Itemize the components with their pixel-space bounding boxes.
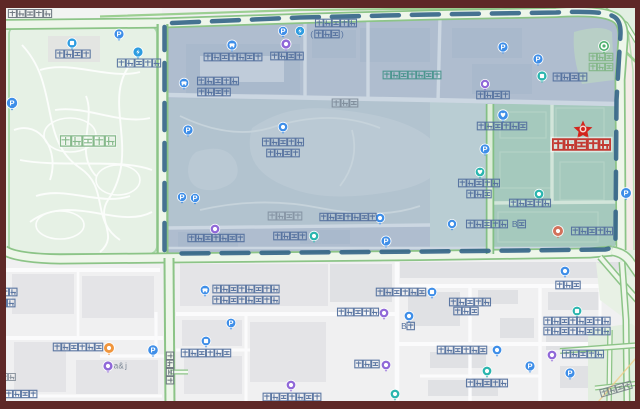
svg-text:P: P bbox=[383, 237, 388, 246]
svg-text:&: & bbox=[118, 362, 124, 371]
svg-text:B: B bbox=[512, 219, 518, 229]
svg-text:P: P bbox=[567, 369, 572, 378]
svg-text:P: P bbox=[535, 55, 540, 64]
svg-text:P: P bbox=[482, 145, 487, 154]
svg-text:P: P bbox=[623, 189, 628, 198]
svg-text:j: j bbox=[124, 362, 127, 371]
svg-text:P: P bbox=[192, 194, 197, 203]
svg-text:P: P bbox=[185, 126, 190, 135]
svg-text:P: P bbox=[179, 193, 184, 202]
svg-text:P: P bbox=[116, 30, 121, 39]
svg-text:P: P bbox=[228, 319, 233, 328]
svg-text:): ) bbox=[341, 29, 344, 39]
svg-text:(: ( bbox=[310, 29, 313, 39]
svg-text:P: P bbox=[500, 43, 505, 52]
svg-text:P: P bbox=[9, 99, 14, 108]
svg-text:P: P bbox=[150, 346, 155, 355]
svg-text:B: B bbox=[401, 321, 407, 331]
svg-text:P: P bbox=[527, 362, 532, 371]
svg-text:P: P bbox=[280, 27, 285, 36]
